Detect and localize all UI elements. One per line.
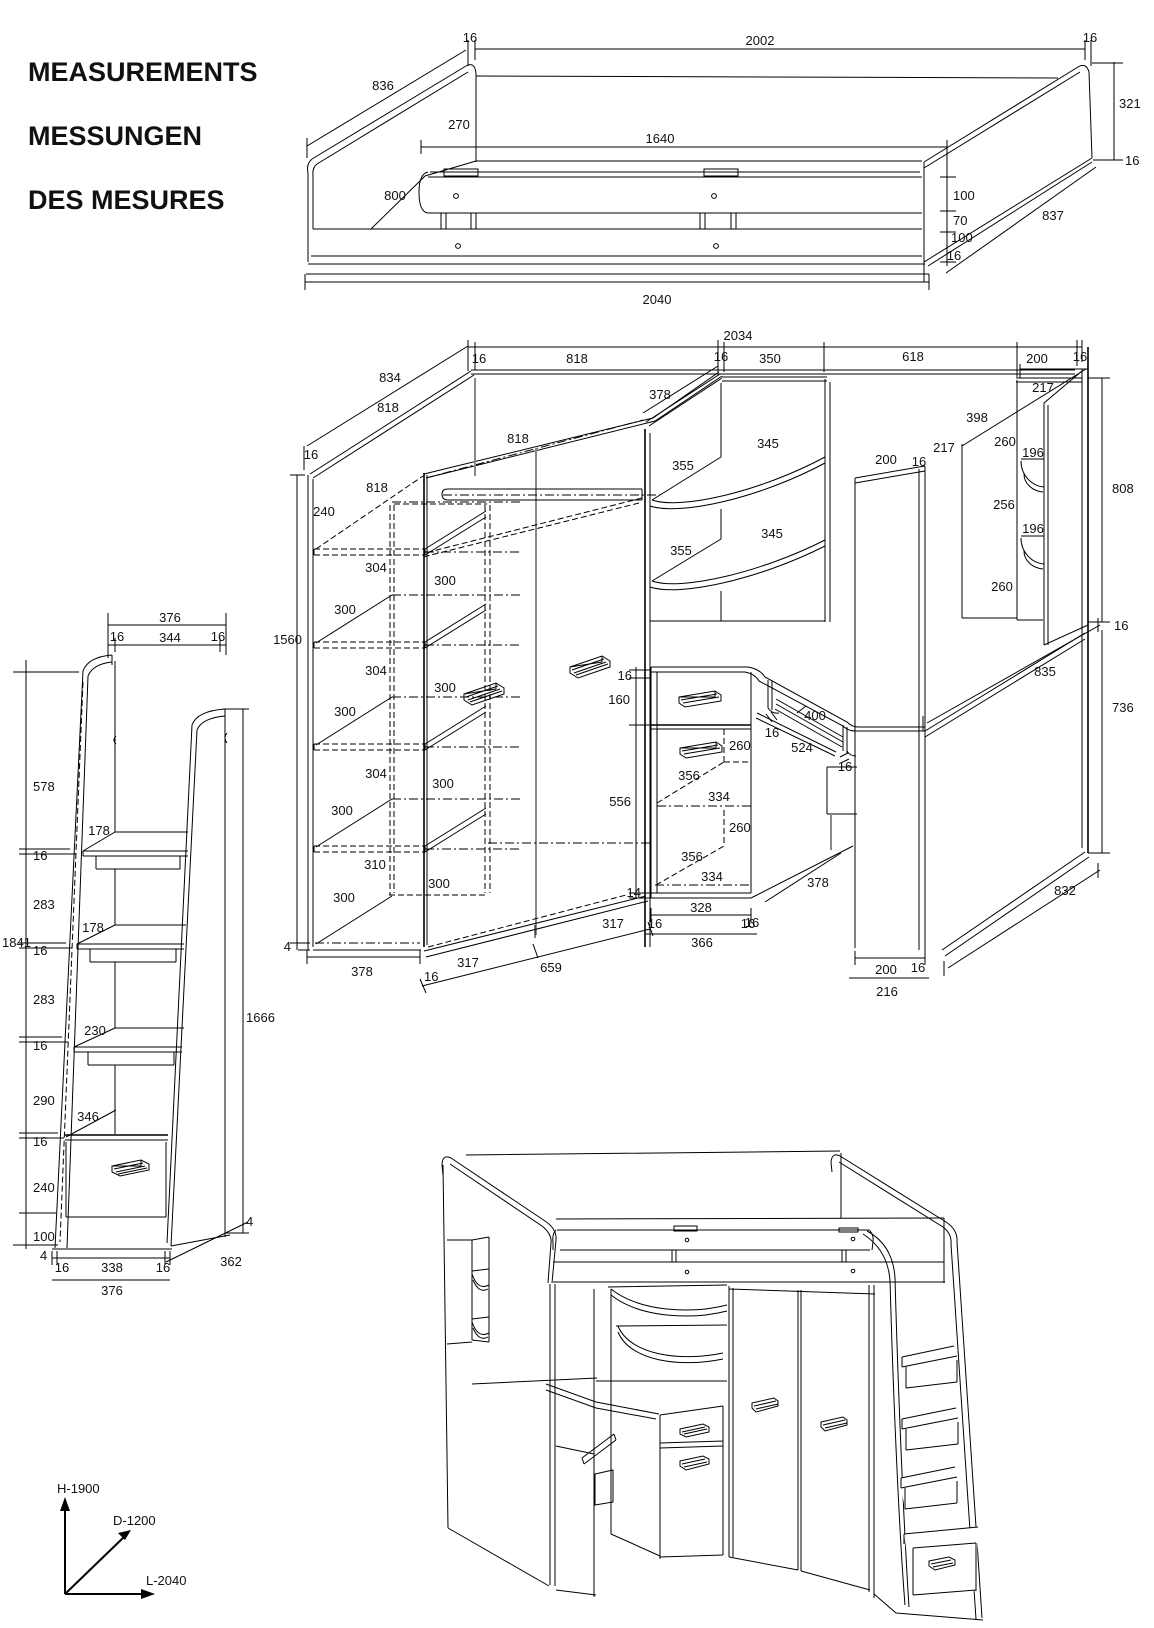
svg-text:338: 338 <box>101 1260 123 1275</box>
svg-text:216: 216 <box>876 984 898 999</box>
svg-text:DES MESURES: DES MESURES <box>28 185 225 215</box>
svg-text:16: 16 <box>33 943 47 958</box>
svg-text:818: 818 <box>366 480 388 495</box>
svg-text:178: 178 <box>82 920 104 935</box>
svg-text:16: 16 <box>55 1260 69 1275</box>
svg-text:321: 321 <box>1119 96 1141 111</box>
svg-text:256: 256 <box>993 497 1015 512</box>
svg-text:260: 260 <box>729 820 751 835</box>
svg-text:16: 16 <box>648 916 662 931</box>
svg-text:217: 217 <box>1032 380 1054 395</box>
svg-text:16: 16 <box>745 915 759 930</box>
svg-text:2002: 2002 <box>746 33 775 48</box>
svg-text:260: 260 <box>991 579 1013 594</box>
svg-text:14: 14 <box>627 885 641 900</box>
svg-text:283: 283 <box>33 992 55 1007</box>
svg-text:300: 300 <box>432 776 454 791</box>
svg-text:300: 300 <box>333 890 355 905</box>
svg-text:300: 300 <box>331 803 353 818</box>
svg-text:832: 832 <box>1054 883 1076 898</box>
svg-text:659: 659 <box>540 960 562 975</box>
svg-text:270: 270 <box>448 117 470 132</box>
svg-text:376: 376 <box>101 1283 123 1298</box>
svg-text:1666: 1666 <box>246 1010 275 1025</box>
svg-text:334: 334 <box>708 789 730 804</box>
svg-text:200: 200 <box>1026 351 1048 366</box>
svg-text:230: 230 <box>84 1023 106 1038</box>
svg-text:818: 818 <box>566 351 588 366</box>
svg-text:16: 16 <box>156 1260 170 1275</box>
svg-text:317: 317 <box>457 955 479 970</box>
svg-text:398: 398 <box>966 410 988 425</box>
svg-text:196: 196 <box>1022 521 1044 536</box>
svg-text:240: 240 <box>33 1180 55 1195</box>
svg-text:16: 16 <box>33 848 47 863</box>
svg-text:16: 16 <box>110 629 124 644</box>
svg-text:356: 356 <box>678 768 700 783</box>
svg-text:837: 837 <box>1042 208 1064 223</box>
svg-text:200: 200 <box>875 452 897 467</box>
svg-text:362: 362 <box>220 1254 242 1269</box>
svg-text:1841: 1841 <box>2 935 31 950</box>
svg-text:16: 16 <box>714 349 728 364</box>
svg-text:L-2040: L-2040 <box>146 1573 186 1588</box>
svg-text:16: 16 <box>472 351 486 366</box>
svg-text:345: 345 <box>757 436 779 451</box>
svg-text:300: 300 <box>434 680 456 695</box>
svg-text:304: 304 <box>365 766 387 781</box>
svg-text:808: 808 <box>1112 481 1134 496</box>
svg-text:736: 736 <box>1112 700 1134 715</box>
svg-text:70: 70 <box>953 213 967 228</box>
svg-text:260: 260 <box>994 434 1016 449</box>
svg-text:196: 196 <box>1022 445 1044 460</box>
svg-text:H-1900: H-1900 <box>57 1481 100 1496</box>
svg-text:818: 818 <box>377 400 399 415</box>
svg-text:100: 100 <box>951 230 973 245</box>
svg-text:300: 300 <box>334 704 356 719</box>
svg-text:16: 16 <box>33 1134 47 1149</box>
svg-text:16: 16 <box>1125 153 1139 168</box>
svg-text:16: 16 <box>1114 618 1128 633</box>
svg-text:300: 300 <box>428 876 450 891</box>
svg-text:290: 290 <box>33 1093 55 1108</box>
svg-text:16: 16 <box>463 30 477 45</box>
svg-text:160: 160 <box>608 692 630 707</box>
svg-text:283: 283 <box>33 897 55 912</box>
svg-text:378: 378 <box>351 964 373 979</box>
svg-text:100: 100 <box>953 188 975 203</box>
svg-text:346: 346 <box>77 1109 99 1124</box>
svg-text:16: 16 <box>618 668 632 683</box>
svg-text:834: 834 <box>379 370 401 385</box>
svg-text:178: 178 <box>88 823 110 838</box>
svg-text:4: 4 <box>40 1248 47 1263</box>
svg-text:16: 16 <box>304 447 318 462</box>
svg-text:240: 240 <box>313 504 335 519</box>
svg-text:800: 800 <box>384 188 406 203</box>
svg-text:334: 334 <box>701 869 723 884</box>
svg-text:350: 350 <box>759 351 781 366</box>
svg-text:556: 556 <box>609 794 631 809</box>
svg-text:200: 200 <box>875 962 897 977</box>
svg-text:2040: 2040 <box>643 292 672 307</box>
svg-text:MEASUREMENTS: MEASUREMENTS <box>28 57 258 87</box>
svg-text:378: 378 <box>649 387 671 402</box>
svg-text:376: 376 <box>159 610 181 625</box>
svg-text:366: 366 <box>691 935 713 950</box>
svg-text:1640: 1640 <box>646 131 675 146</box>
svg-text:300: 300 <box>434 573 456 588</box>
svg-text:16: 16 <box>1083 30 1097 45</box>
svg-text:355: 355 <box>670 543 692 558</box>
svg-text:818: 818 <box>507 431 529 446</box>
svg-text:578: 578 <box>33 779 55 794</box>
svg-text:D-1200: D-1200 <box>113 1513 156 1528</box>
svg-text:16: 16 <box>947 248 961 263</box>
svg-text:MESSUNGEN: MESSUNGEN <box>28 121 202 151</box>
svg-text:16: 16 <box>424 969 438 984</box>
svg-text:304: 304 <box>365 560 387 575</box>
svg-text:16: 16 <box>211 629 225 644</box>
svg-text:2034: 2034 <box>724 328 753 343</box>
svg-text:317: 317 <box>602 916 624 931</box>
svg-text:400: 400 <box>804 708 826 723</box>
svg-text:378: 378 <box>807 875 829 890</box>
svg-text:304: 304 <box>365 663 387 678</box>
svg-text:356: 356 <box>681 849 703 864</box>
svg-text:328: 328 <box>690 900 712 915</box>
svg-text:618: 618 <box>902 349 924 364</box>
svg-text:16: 16 <box>912 454 926 469</box>
svg-text:4: 4 <box>246 1214 253 1229</box>
svg-text:1560: 1560 <box>273 632 302 647</box>
svg-text:16: 16 <box>911 960 925 975</box>
svg-text:300: 300 <box>334 602 356 617</box>
svg-text:217: 217 <box>933 440 955 455</box>
svg-text:524: 524 <box>791 740 813 755</box>
svg-text:310: 310 <box>364 857 386 872</box>
svg-text:836: 836 <box>372 78 394 93</box>
svg-text:835: 835 <box>1034 664 1056 679</box>
svg-text:260: 260 <box>729 738 751 753</box>
svg-text:355: 355 <box>672 458 694 473</box>
svg-text:100: 100 <box>33 1229 55 1244</box>
svg-text:345: 345 <box>761 526 783 541</box>
svg-text:16: 16 <box>1073 349 1087 364</box>
svg-text:4: 4 <box>284 939 291 954</box>
svg-text:16: 16 <box>765 725 779 740</box>
svg-text:344: 344 <box>159 630 181 645</box>
svg-text:16: 16 <box>33 1038 47 1053</box>
